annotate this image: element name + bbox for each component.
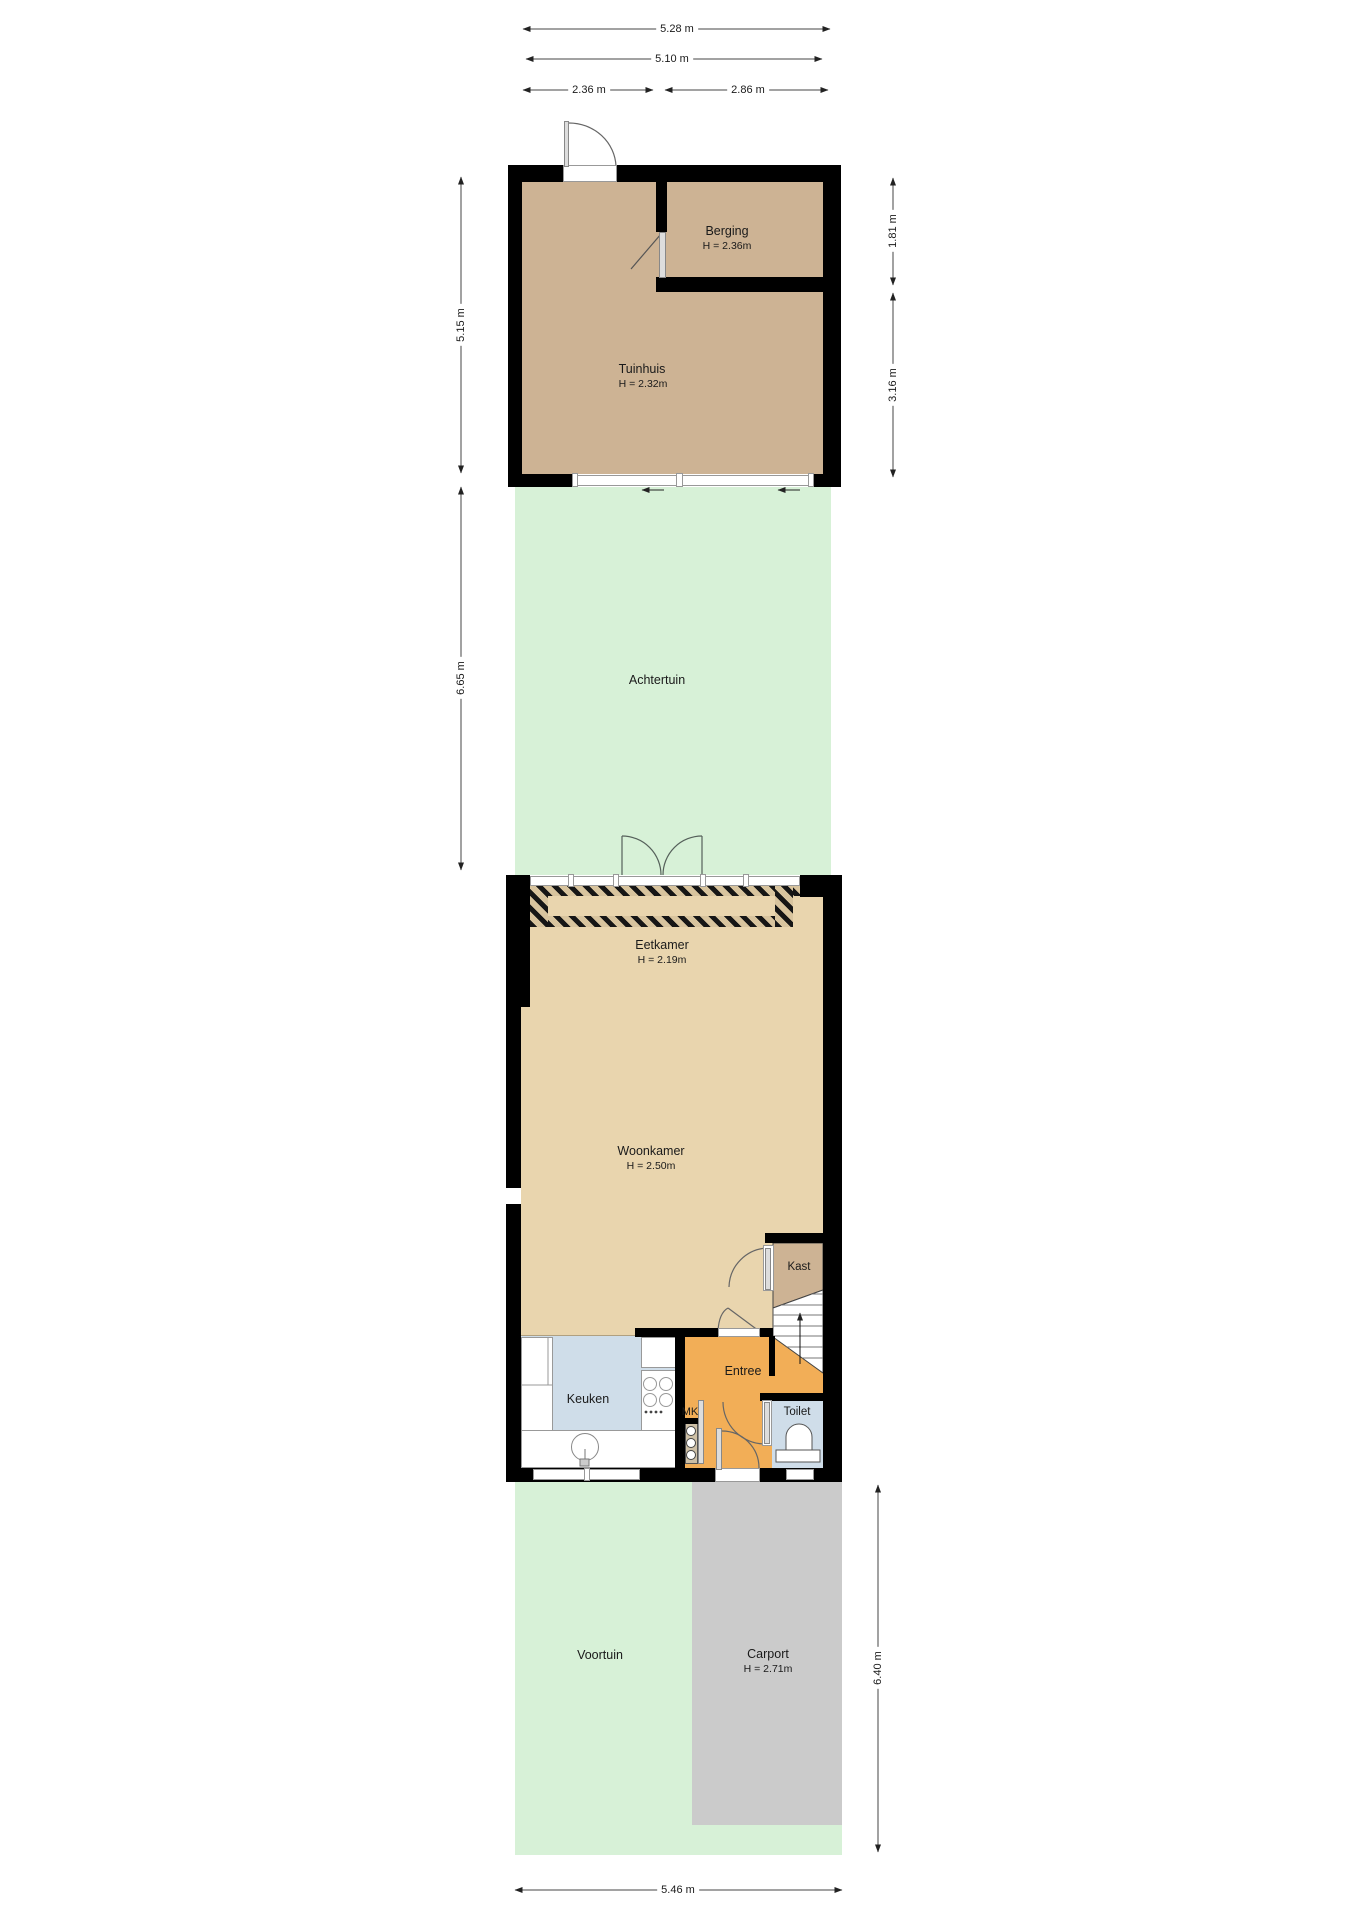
- kitchen-window-mullion: [584, 1468, 590, 1481]
- tuinhuis-height: H = 2.32m: [619, 378, 668, 390]
- house-wall-left-thick: [506, 897, 530, 1007]
- house-wall-right: [823, 897, 842, 1482]
- berging-door-slab: [659, 232, 666, 278]
- rear-window-mullion-right: [808, 473, 814, 487]
- dim-achtertuin-depth: 6.65 m: [455, 657, 467, 699]
- voortuin-label: Voortuin: [577, 1648, 623, 1662]
- dim-top-outer: 5.28 m: [656, 23, 698, 35]
- kast-label: Kast: [787, 1261, 810, 1273]
- mk-label: MK: [682, 1406, 699, 1418]
- carport-label: Carport: [747, 1647, 789, 1661]
- berging-height: H = 2.36m: [703, 240, 752, 252]
- front-door-opening: [715, 1468, 760, 1482]
- eetkamer-height: H = 2.19m: [638, 954, 687, 966]
- toilet-label: Toilet: [784, 1406, 811, 1418]
- dim-berging-width: 2.86 m: [727, 84, 769, 96]
- tuinhuis-exterior-door-arc: [569, 123, 616, 166]
- kast-door-slab: [765, 1248, 771, 1290]
- berging-label: Berging: [705, 224, 748, 238]
- dim-top-inner: 5.10 m: [651, 53, 693, 65]
- outbuilding-wall-left: [508, 182, 522, 474]
- floorplan-canvas: Berging H = 2.36m Tuinhuis H = 2.32m Ach…: [0, 0, 1358, 1920]
- meter-symbols: [687, 1427, 696, 1460]
- mk-door-slab: [698, 1400, 704, 1464]
- outbuilding-wall-top: [508, 165, 841, 182]
- berging-bottom-wall: [656, 277, 841, 292]
- tuinhuis-exterior-door-opening: [563, 165, 617, 182]
- house-wall-left: [506, 1007, 521, 1468]
- entree-label: Entree: [725, 1364, 762, 1378]
- counter-divider-lines: [521, 1337, 553, 1385]
- berging-door-leaf: [631, 234, 661, 269]
- house-corner-top-left: [506, 875, 530, 897]
- woonkamer-entree-wall-left: [635, 1328, 718, 1337]
- berging-divider-wall: [656, 182, 667, 232]
- keuken-label: Keuken: [567, 1392, 609, 1406]
- woonkamer-label: Woonkamer: [617, 1144, 684, 1158]
- dim-tuinhuis-lower-depth: 3.16 m: [887, 364, 899, 406]
- outbuilding-wall-bottom-right: [813, 474, 841, 487]
- eetkamer-label: Eetkamer: [635, 938, 689, 952]
- mk-wall: [675, 1337, 685, 1468]
- dim-berging-depth: 1.81 m: [887, 210, 899, 252]
- dim-plot-width: 5.46 m: [657, 1884, 699, 1896]
- kast-top-wall: [765, 1233, 823, 1243]
- carport-height: H = 2.71m: [744, 1663, 793, 1675]
- toilet-door-slab: [764, 1402, 770, 1444]
- stairs-side-wall: [769, 1336, 775, 1376]
- party-wall-notch: [506, 1188, 521, 1204]
- dim-tuinhuis-width: 2.36 m: [568, 84, 610, 96]
- woonkamer-height: H = 2.50m: [627, 1160, 676, 1172]
- front-door-slab: [716, 1428, 722, 1470]
- outbuilding-wall-right: [823, 182, 841, 474]
- tuinhuis-label: Tuinhuis: [619, 362, 666, 376]
- toilet-window: [786, 1469, 814, 1480]
- rear-window-mullion-left: [572, 473, 578, 487]
- kitchen-sink: [572, 1434, 599, 1467]
- serre-mullion-4: [743, 874, 749, 887]
- house-corner-top-right: [800, 875, 842, 897]
- garden-french-doors: [622, 836, 702, 875]
- front-door-arc: [722, 1431, 759, 1468]
- outbuilding-wall-bottom-left: [508, 474, 575, 487]
- serre-mullion-1: [568, 874, 574, 887]
- dim-tuinhuis-depth: 5.15 m: [455, 304, 467, 346]
- serre-mullion-2: [613, 874, 619, 887]
- serre-mullion-3: [700, 874, 706, 887]
- dim-voortuin-depth: 6.40 m: [872, 1647, 884, 1689]
- achtertuin-label: Achtertuin: [629, 673, 685, 687]
- tuinhuis-rear-window: [575, 475, 813, 486]
- mk-stub: [685, 1418, 698, 1424]
- stove-burners: [644, 1378, 673, 1414]
- toilet-fixture: [776, 1424, 820, 1462]
- rear-window-mullion-center: [676, 473, 683, 487]
- tuinhuis-exterior-door-slab: [564, 121, 569, 167]
- woonkamer-entree-door-frame: [718, 1328, 760, 1337]
